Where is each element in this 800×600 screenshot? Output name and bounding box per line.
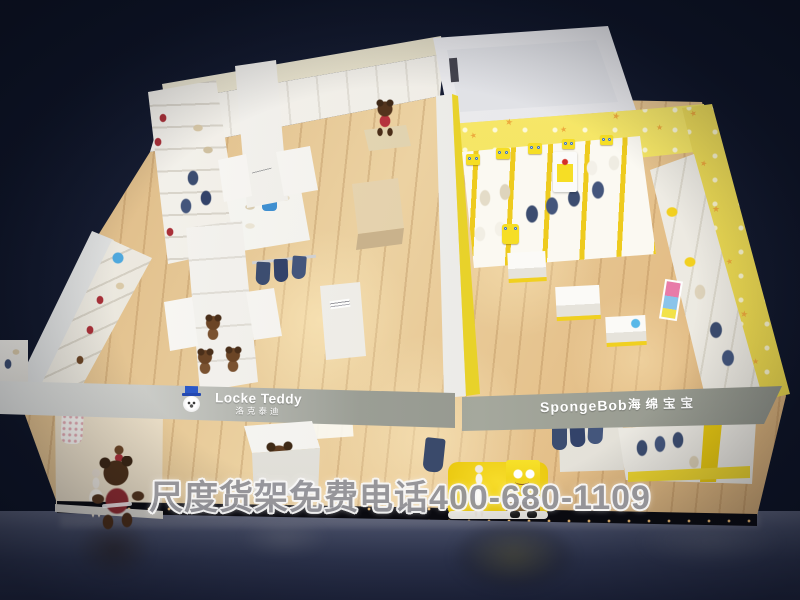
watermark-text: 尺度货架免费电话400-680-1109 [0, 470, 800, 519]
store-render-scene: Locke Teddy 洛克泰迪 SpongeBob 海绵宝宝 尺度货架免费电话… [0, 0, 800, 600]
